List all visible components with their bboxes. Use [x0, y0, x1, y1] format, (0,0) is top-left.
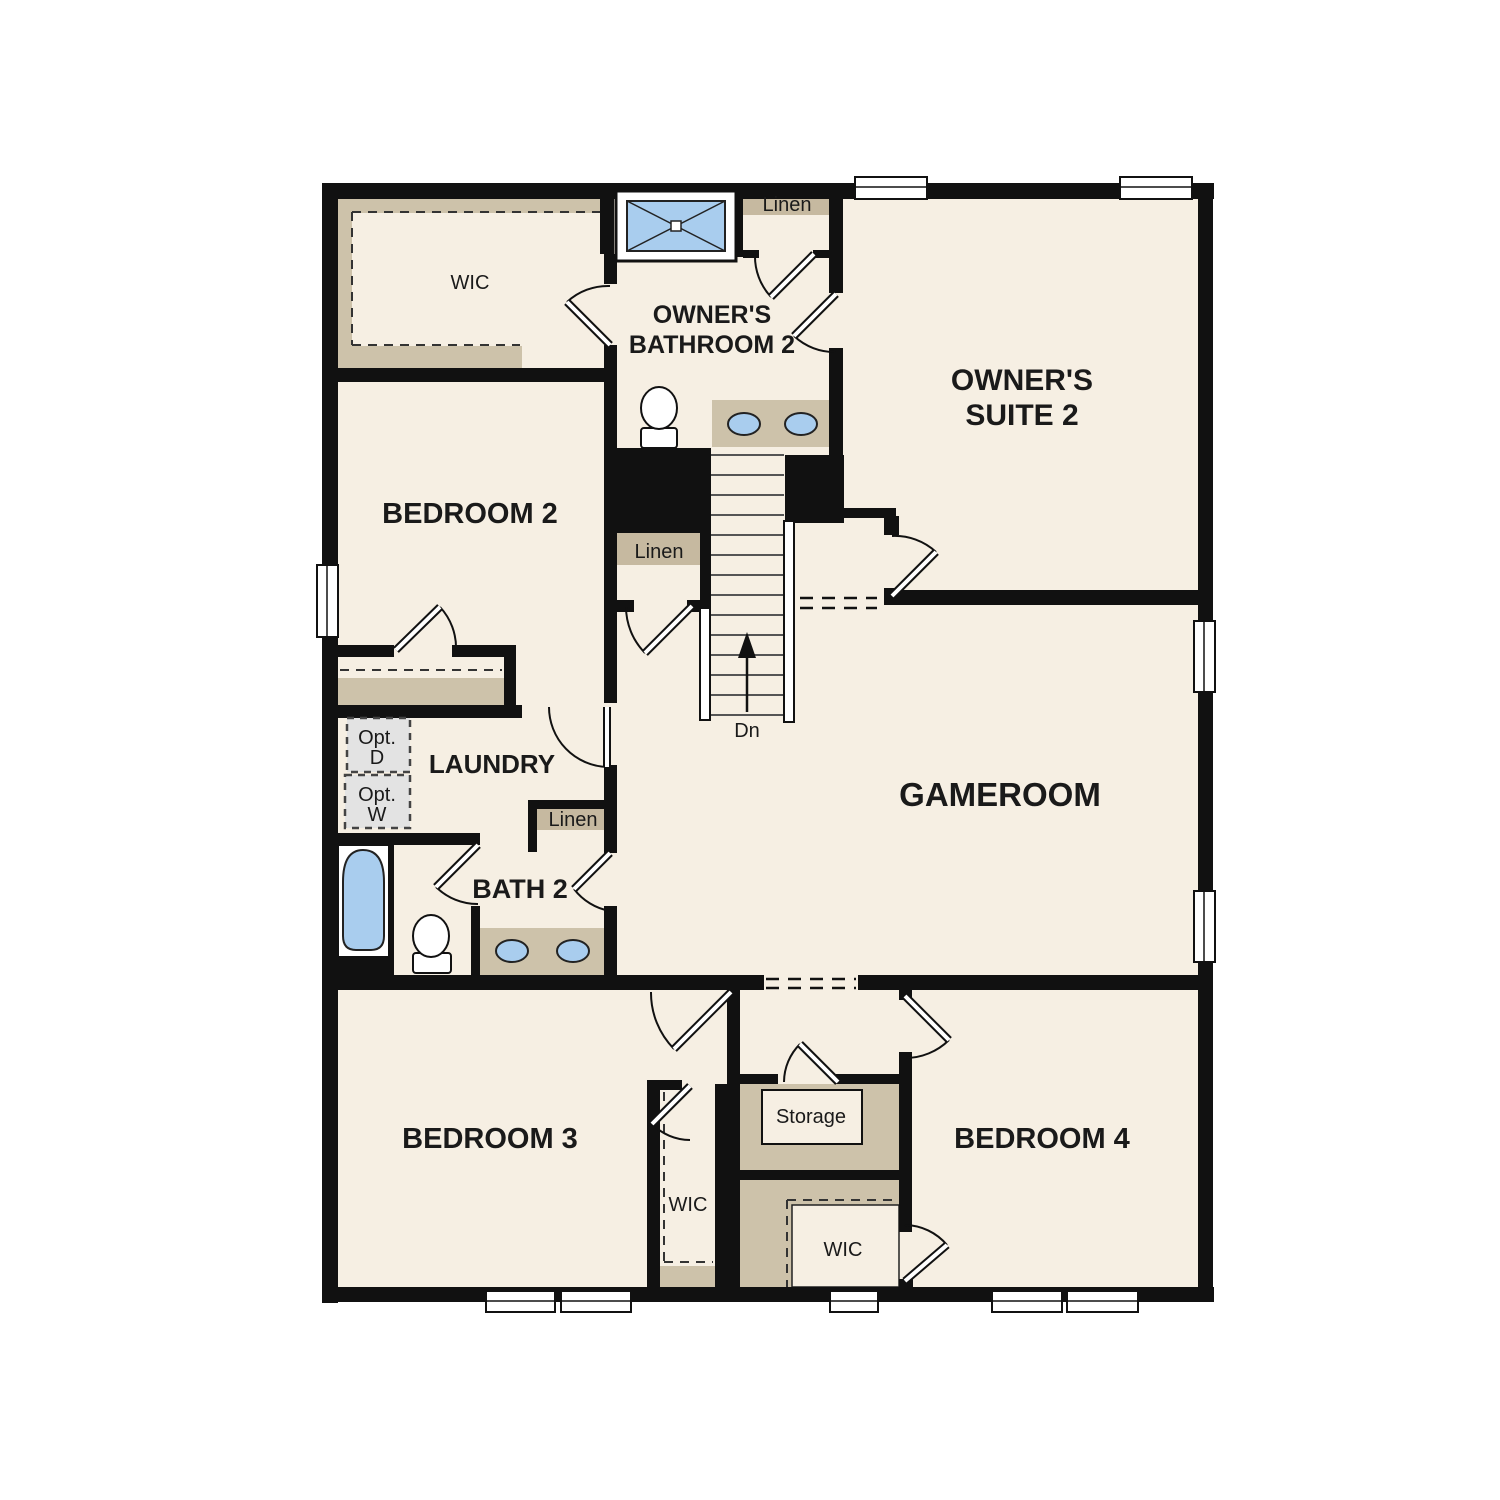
window [855, 177, 927, 199]
room-label-wic-bedroom4: WIC [824, 1239, 863, 1261]
room-label-gameroom: GAMEROOM [899, 776, 1101, 813]
room-label-bedroom2: BEDROOM 2 [382, 498, 558, 530]
opt-washer-label-line1: Opt. [358, 784, 396, 806]
room-label-bedroom4: BEDROOM 4 [954, 1123, 1130, 1155]
room-label-linen-mid: Linen [635, 541, 684, 563]
window [486, 1291, 555, 1312]
window [1194, 621, 1215, 692]
room-label-bath2: BATH 2 [472, 874, 568, 904]
window [1067, 1291, 1138, 1312]
bedroom2-closet-shelf [337, 678, 505, 705]
wic-bedroom3-shelf [660, 1266, 715, 1287]
staircase [700, 455, 794, 722]
stair-rail-right [784, 521, 794, 722]
stairs-down-label: Dn [734, 720, 760, 742]
room-label-owners-bathroom-line1: OWNER'S [653, 301, 771, 329]
room-label-storage: Storage [776, 1106, 846, 1128]
room-label-linen-top: Linen [763, 194, 812, 216]
room-label-owners-suite-line2: SUITE 2 [965, 399, 1078, 432]
room-label-wic-bedroom3: WIC [669, 1194, 708, 1216]
toilet-icon [641, 387, 677, 448]
toilet-icon [413, 915, 451, 973]
shower-icon [616, 191, 736, 261]
window [1194, 891, 1215, 962]
floor-plan: WIC Linen OWNER'S BATHROOM 2 OWNER'S SUI… [0, 0, 1500, 1500]
window [317, 565, 338, 637]
room-label-bedroom3: BEDROOM 3 [402, 1123, 578, 1155]
stair-rail-left [700, 608, 710, 720]
window [992, 1291, 1062, 1312]
bathtub-icon [338, 845, 389, 957]
room-label-owners-suite-line1: OWNER'S [951, 364, 1093, 397]
room-label-owners-bathroom-line2: BATHROOM 2 [629, 331, 795, 359]
opt-dryer-label-line2: D [370, 747, 384, 769]
window [1120, 177, 1192, 199]
room-label-linen-bath2: Linen [549, 809, 598, 831]
window [830, 1291, 878, 1312]
room-label-laundry: LAUNDRY [429, 749, 555, 779]
opt-dryer-label-line1: Opt. [358, 727, 396, 749]
opt-washer-label-line2: W [368, 804, 387, 826]
window [561, 1291, 631, 1312]
room-label-wic-owner: WIC [451, 272, 490, 294]
floor-plan-page: WIC Linen OWNER'S BATHROOM 2 OWNER'S SUI… [0, 0, 1500, 1500]
